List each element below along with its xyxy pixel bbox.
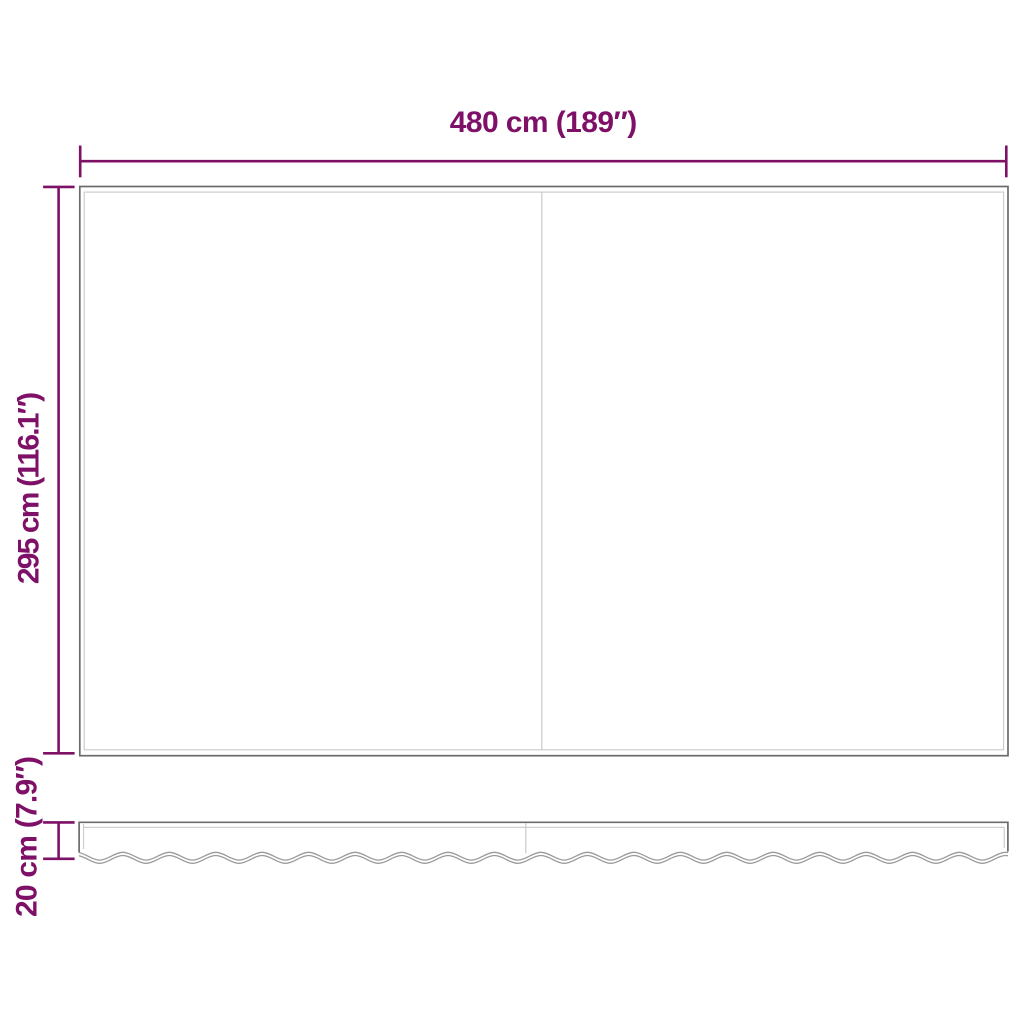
svg-text:20 cm (7.9″): 20 cm (7.9″) bbox=[11, 756, 44, 917]
svg-text:480 cm (189″): 480 cm (189″) bbox=[450, 106, 638, 139]
svg-text:295 cm (116.1″): 295 cm (116.1″) bbox=[13, 392, 46, 584]
